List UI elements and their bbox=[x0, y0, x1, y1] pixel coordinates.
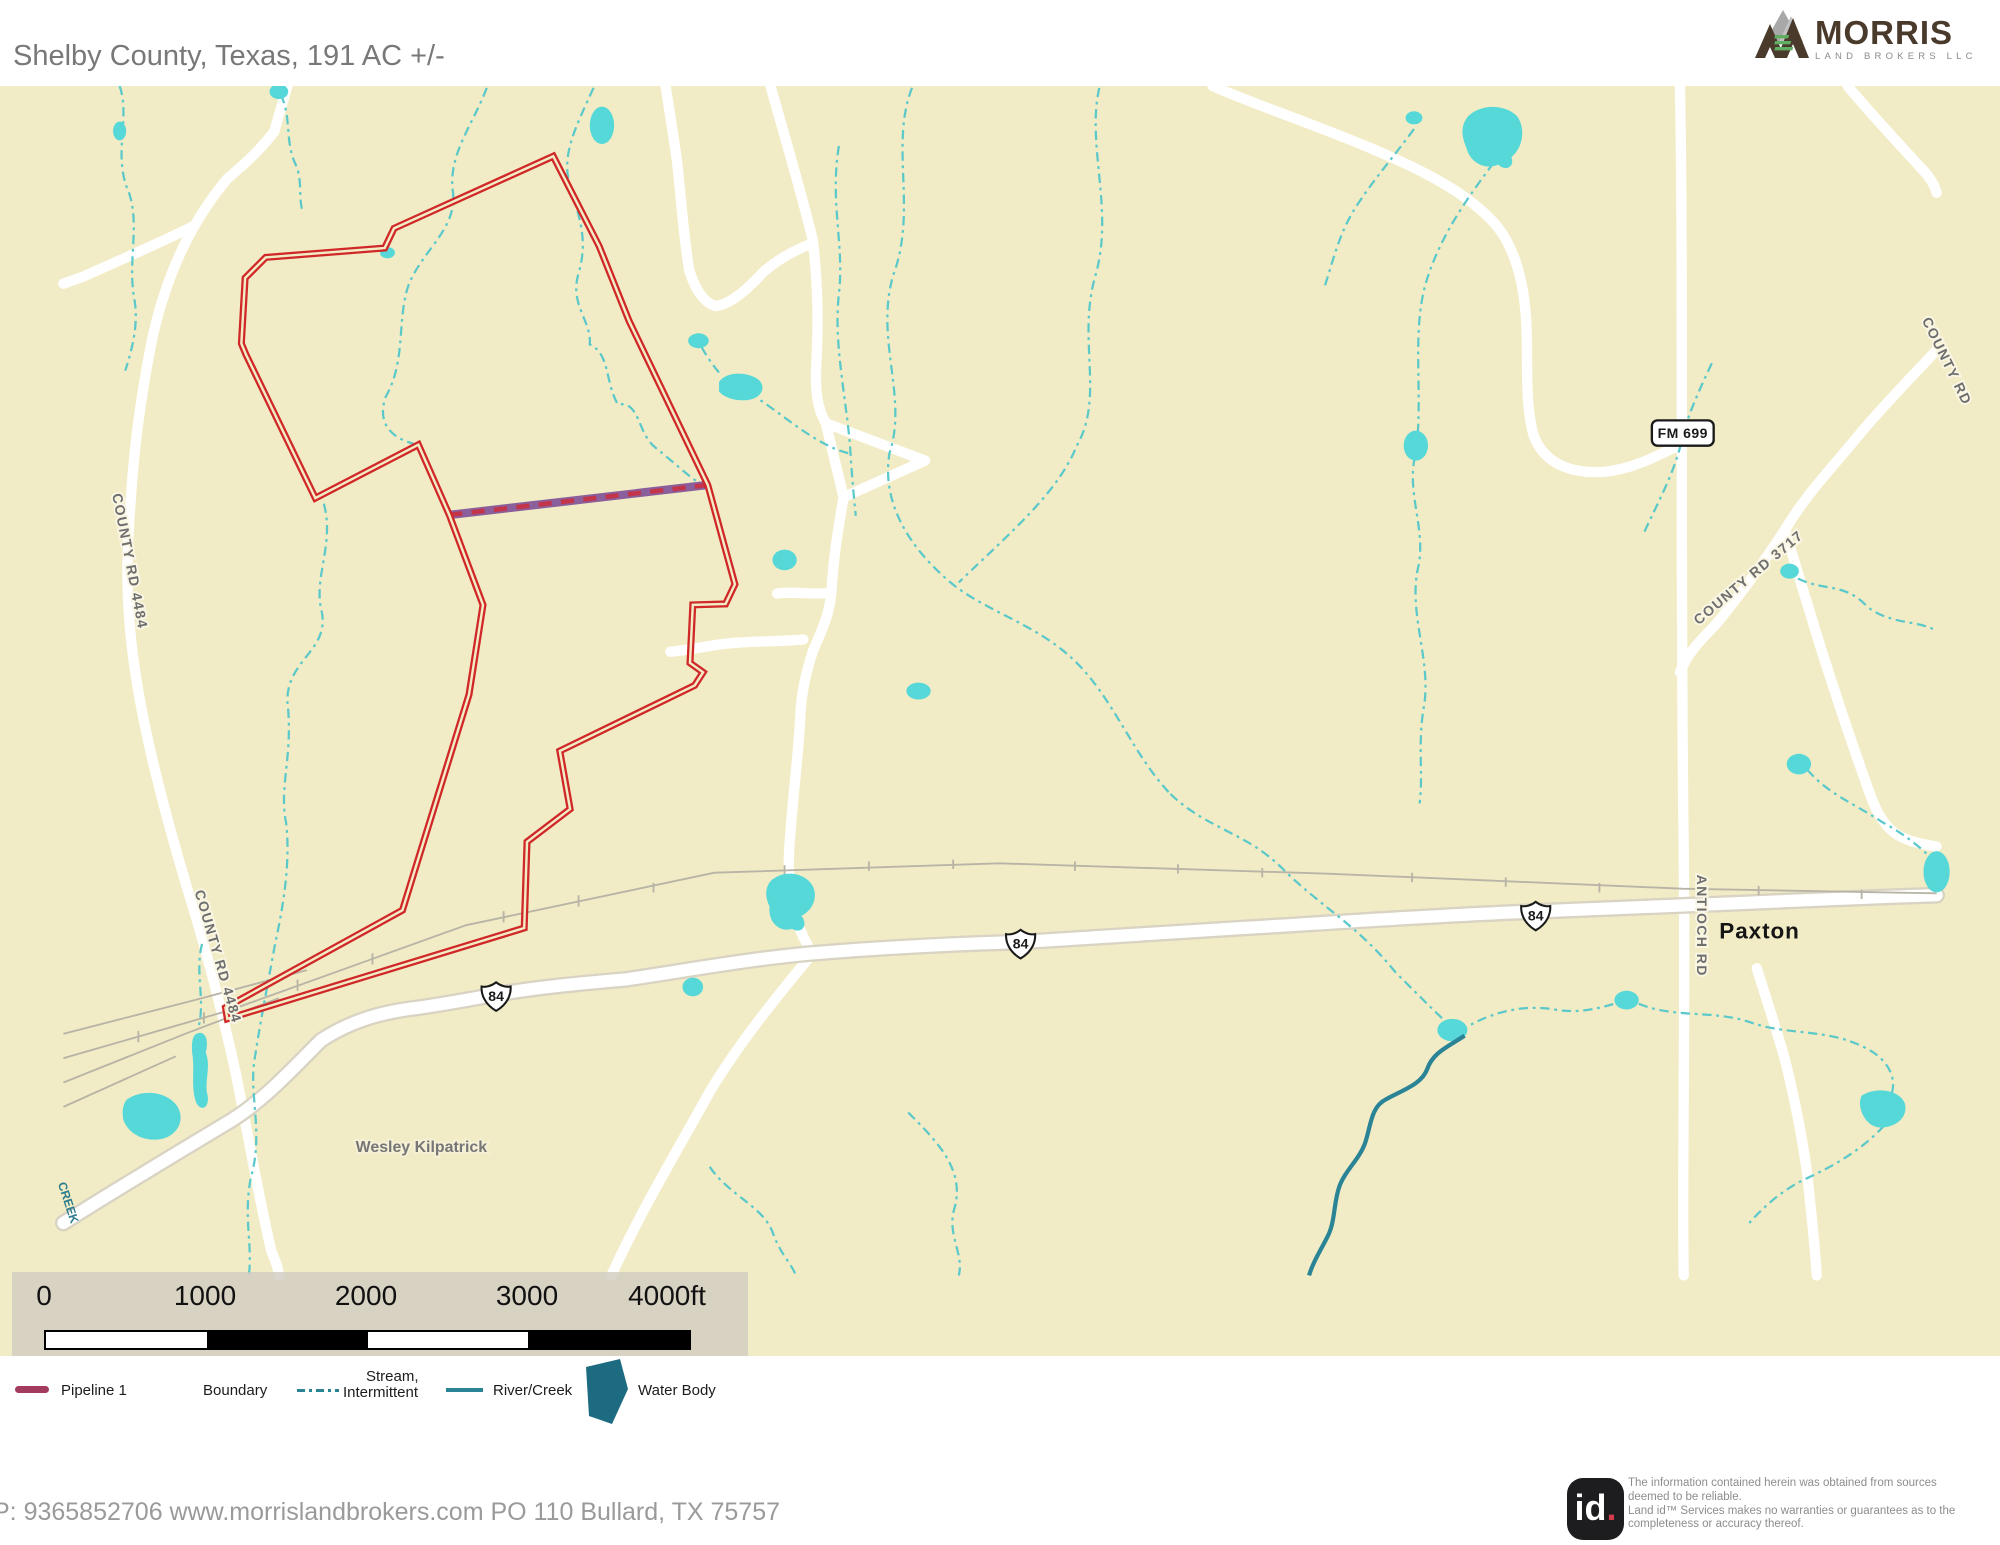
scale-bar: 0 1000 2000 3000 4000ft bbox=[12, 1272, 748, 1356]
roads-layer bbox=[63, 86, 1936, 1275]
legend-boundary-label: Boundary bbox=[203, 1382, 267, 1399]
brand-name: MORRIS bbox=[1815, 18, 1977, 48]
land-id-logo: id. bbox=[1567, 1478, 1624, 1540]
us-84-shield: 84 bbox=[1521, 902, 1550, 931]
disclaimer-line: Land id™ Services makes no warranties or… bbox=[1628, 1505, 1973, 1519]
scale-end-label: 4000ft bbox=[628, 1280, 706, 1312]
property-boundary bbox=[225, 156, 734, 1019]
scale-track bbox=[44, 1330, 691, 1350]
legend-stream-label-1: Stream, bbox=[366, 1368, 419, 1385]
river-swatch bbox=[446, 1388, 483, 1392]
disclaimer-line: deemed to be reliable. bbox=[1628, 1491, 1973, 1505]
stream-swatch bbox=[297, 1388, 339, 1392]
legend-stream-label-2: Intermittent bbox=[343, 1384, 418, 1401]
legend-water-label: Water Body bbox=[638, 1382, 716, 1399]
svg-text:FM 699: FM 699 bbox=[1658, 425, 1708, 441]
disclaimer-line: The information contained herein was obt… bbox=[1628, 1477, 1973, 1491]
fm-699-badge: FM 699 bbox=[1652, 420, 1714, 445]
pipeline-swatch bbox=[15, 1386, 49, 1393]
streams-layer bbox=[120, 86, 1937, 1275]
map-viewport[interactable]: FM 699 84 84 84 COUNTY RD 4484 COUNTY RD… bbox=[0, 86, 2000, 1356]
svg-text:84: 84 bbox=[1013, 936, 1029, 952]
brand-logo: MORRIS LAND BROKERS LLC bbox=[1753, 8, 1988, 72]
river-creek bbox=[1309, 1036, 1464, 1276]
road-label-antioch-rd: ANTIOCH RD bbox=[1694, 875, 1710, 977]
place-label-wesley-kilpatrick: Wesley Kilpatrick bbox=[356, 1139, 488, 1156]
water-body-swatch bbox=[583, 1358, 629, 1428]
us-84-shield: 84 bbox=[482, 982, 511, 1011]
page-title: Shelby County, Texas, 191 AC +/- bbox=[13, 40, 445, 73]
svg-text:84: 84 bbox=[488, 988, 504, 1004]
svg-text:84: 84 bbox=[1528, 907, 1544, 923]
town-label-paxton: Paxton bbox=[1719, 918, 1800, 943]
mountains-logo-icon bbox=[1753, 53, 1815, 70]
brand-subtitle: LAND BROKERS LLC bbox=[1815, 51, 1977, 62]
scale-tick: 3000 bbox=[496, 1280, 558, 1312]
scale-tick: 1000 bbox=[174, 1280, 236, 1312]
map-canvas[interactable]: FM 699 84 84 84 COUNTY RD 4484 COUNTY RD… bbox=[0, 86, 2000, 1356]
legend-pipeline-label: Pipeline 1 bbox=[61, 1382, 127, 1399]
disclaimer-line: completeness or accuracy thereof. bbox=[1628, 1518, 1973, 1532]
us-84-shield: 84 bbox=[1006, 930, 1035, 959]
pipeline-1 bbox=[449, 485, 707, 515]
scale-tick: 2000 bbox=[335, 1280, 397, 1312]
scale-tick: 0 bbox=[36, 1280, 52, 1312]
logo-dot: . bbox=[1606, 1487, 1616, 1528]
legend-river-label: River/Creek bbox=[493, 1382, 572, 1399]
map-legend: Pipeline 1 Boundary Stream, Intermittent… bbox=[0, 1356, 2000, 1442]
disclaimer-text: The information contained herein was obt… bbox=[1628, 1477, 1973, 1532]
footer-contact: P: 9365852706 www.morrislandbrokers.com … bbox=[0, 1498, 780, 1527]
